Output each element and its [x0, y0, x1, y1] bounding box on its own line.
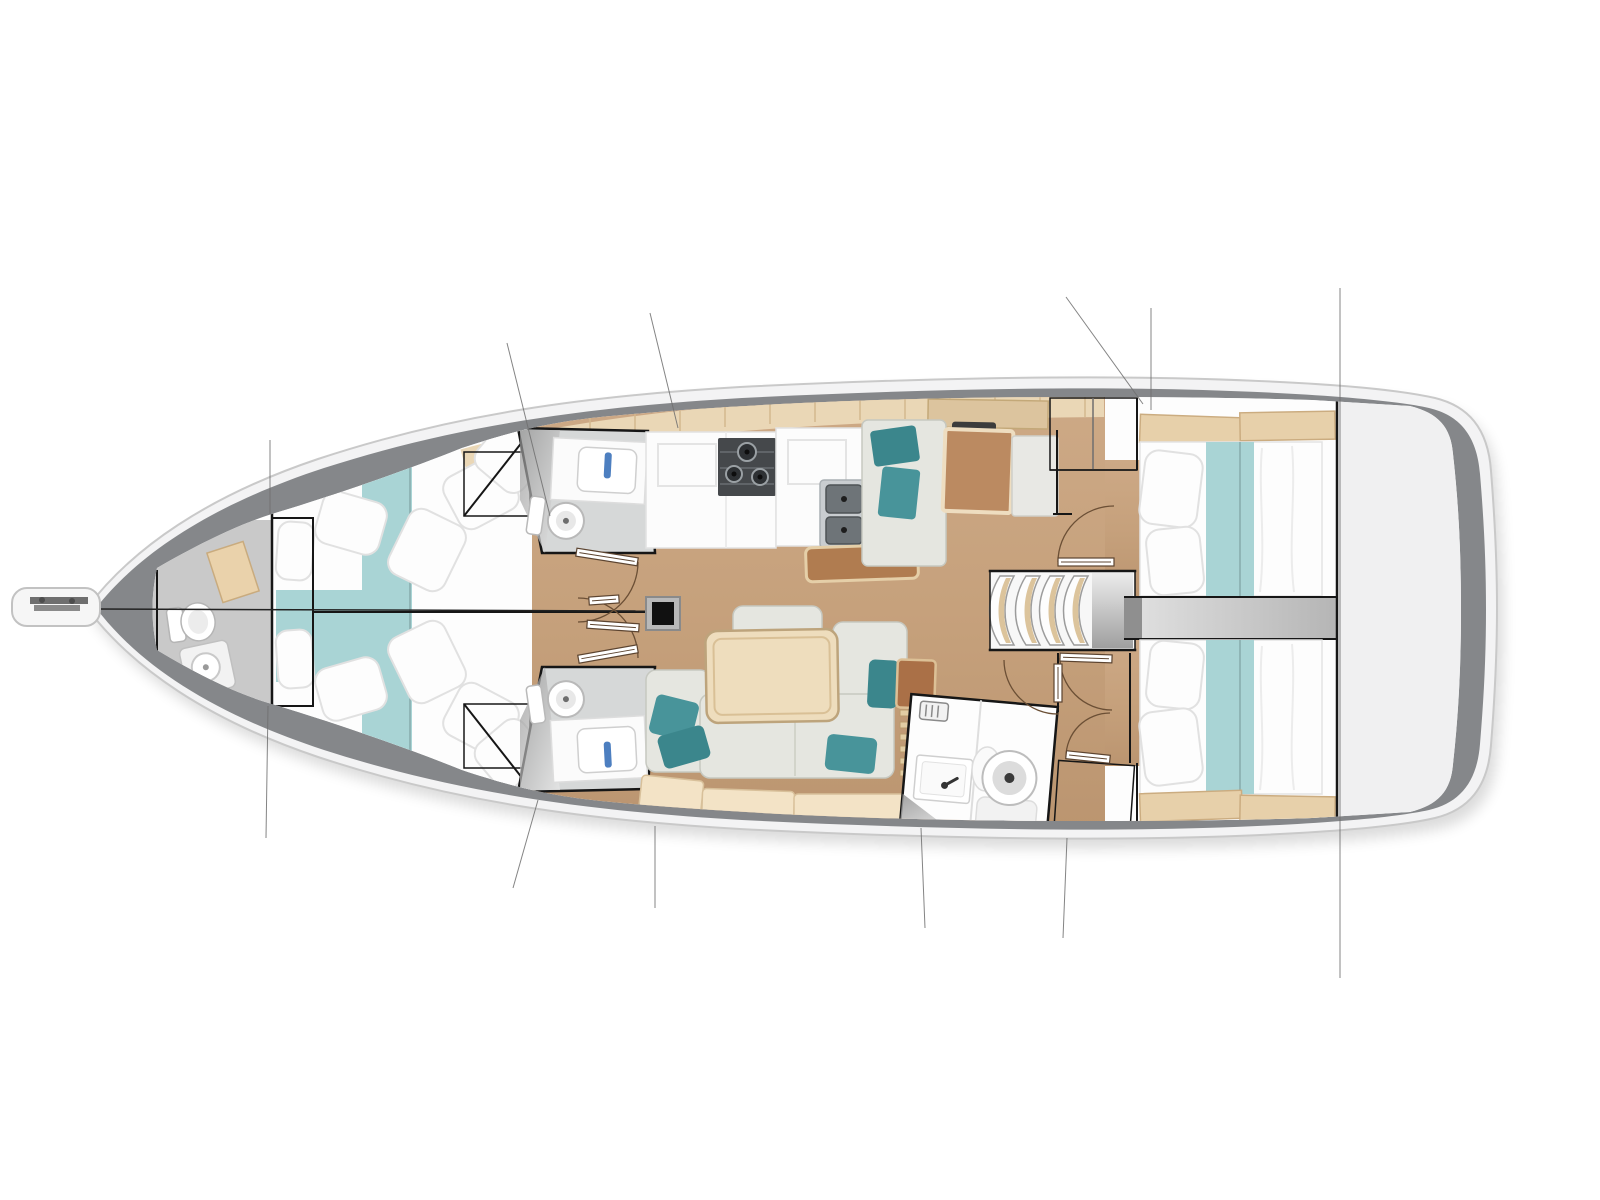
bed-runner-aqua-vertical: [362, 452, 412, 764]
faucet-icon: [604, 452, 612, 478]
headboard-shelf: [1140, 790, 1243, 822]
chart-table: [1012, 436, 1058, 516]
vent-icon: [919, 701, 948, 721]
chart-seat: [943, 429, 1014, 513]
pillow: [275, 521, 315, 581]
companionway-steps: [990, 571, 1136, 650]
bowsprit: [12, 588, 100, 626]
sink-icon: [550, 438, 647, 505]
sink-icon: [550, 716, 647, 783]
head-port: [518, 667, 655, 792]
teal-throw-pillow: [867, 659, 899, 709]
headboard-shelf: [1240, 411, 1335, 441]
door-leaf: [589, 595, 619, 605]
boat-floor-plan: [0, 0, 1600, 1200]
pillow: [1138, 449, 1205, 530]
sink-icon: [913, 755, 973, 804]
pillow: [275, 629, 315, 689]
teal-throw-pillow: [824, 733, 877, 774]
bed-runner-aqua: [1206, 442, 1254, 596]
door-leaf: [1058, 558, 1114, 566]
rigging-line: [1063, 838, 1067, 938]
faucet-icon: [604, 741, 612, 767]
door-leaf: [1054, 664, 1062, 702]
door-leaf: [1060, 653, 1112, 663]
pillow: [1145, 639, 1206, 710]
teal-cushion: [877, 466, 920, 520]
page-root: [0, 0, 1600, 1200]
headboard-shelf: [1140, 414, 1243, 446]
stove-icon: [718, 438, 776, 496]
teal-cushion: [870, 425, 921, 467]
dining-table: [705, 629, 839, 723]
pillow: [1138, 707, 1205, 788]
anchor-roller-icon: [30, 597, 88, 611]
aft-cabin-port: [1137, 639, 1335, 824]
pillow: [1145, 525, 1206, 596]
bed-runner-aqua: [1206, 640, 1254, 794]
mast-step-icon: [646, 597, 680, 630]
engine-corridor: [1124, 597, 1337, 639]
head-starboard: [518, 428, 655, 553]
aft-deck: [1337, 392, 1465, 828]
